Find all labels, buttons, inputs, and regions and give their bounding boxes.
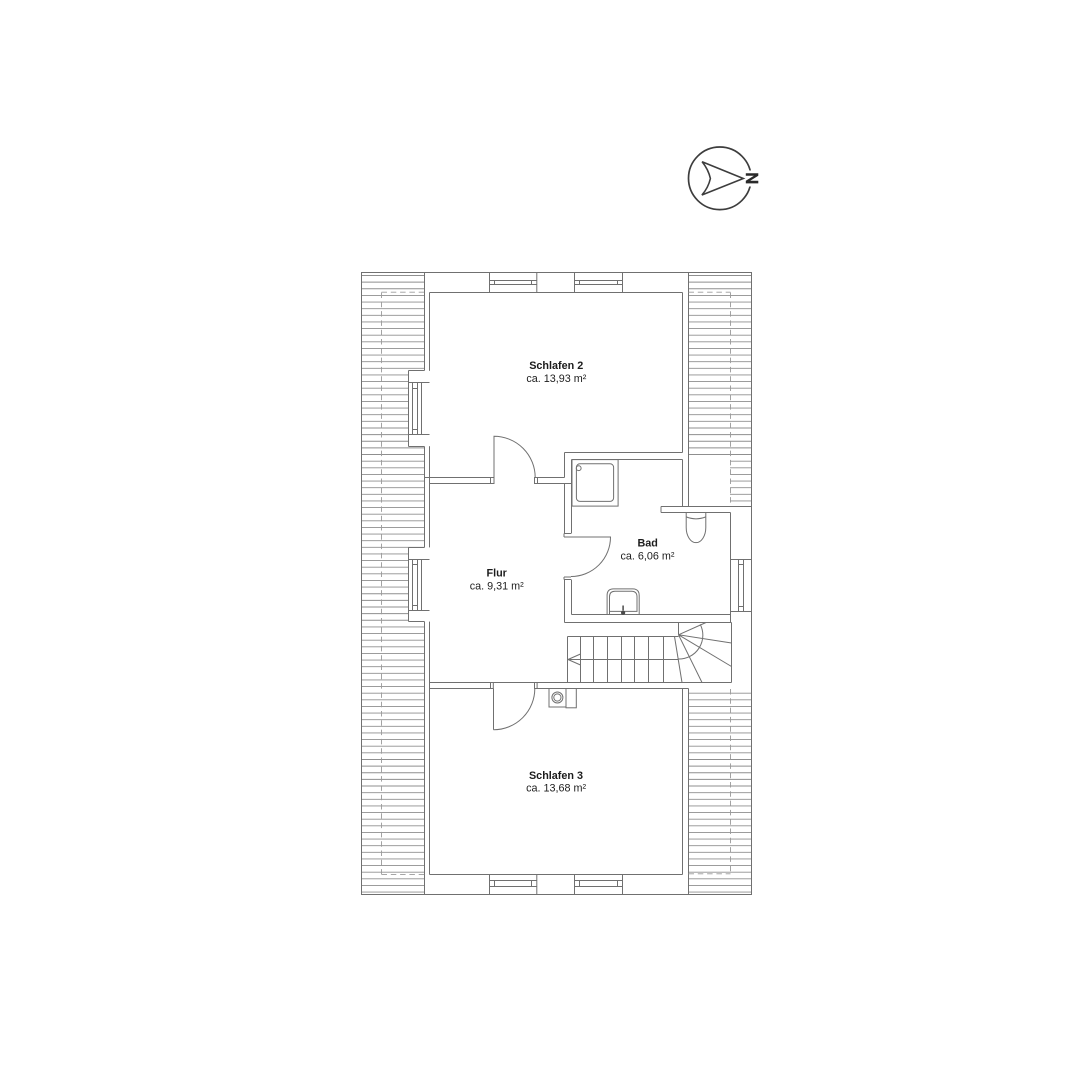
svg-text:Schlafen 2: Schlafen 2 bbox=[529, 360, 583, 372]
svg-text:Flur: Flur bbox=[486, 568, 507, 580]
svg-text:ca. 6,06 m²: ca. 6,06 m² bbox=[620, 550, 674, 562]
svg-text:ca. 13,68 m²: ca. 13,68 m² bbox=[526, 783, 586, 795]
svg-text:Schlafen 3: Schlafen 3 bbox=[529, 770, 583, 782]
svg-text:ca. 9,31 m²: ca. 9,31 m² bbox=[470, 580, 524, 592]
svg-text:ca. 13,93 m²: ca. 13,93 m² bbox=[526, 373, 586, 385]
svg-text:Bad: Bad bbox=[637, 538, 657, 550]
